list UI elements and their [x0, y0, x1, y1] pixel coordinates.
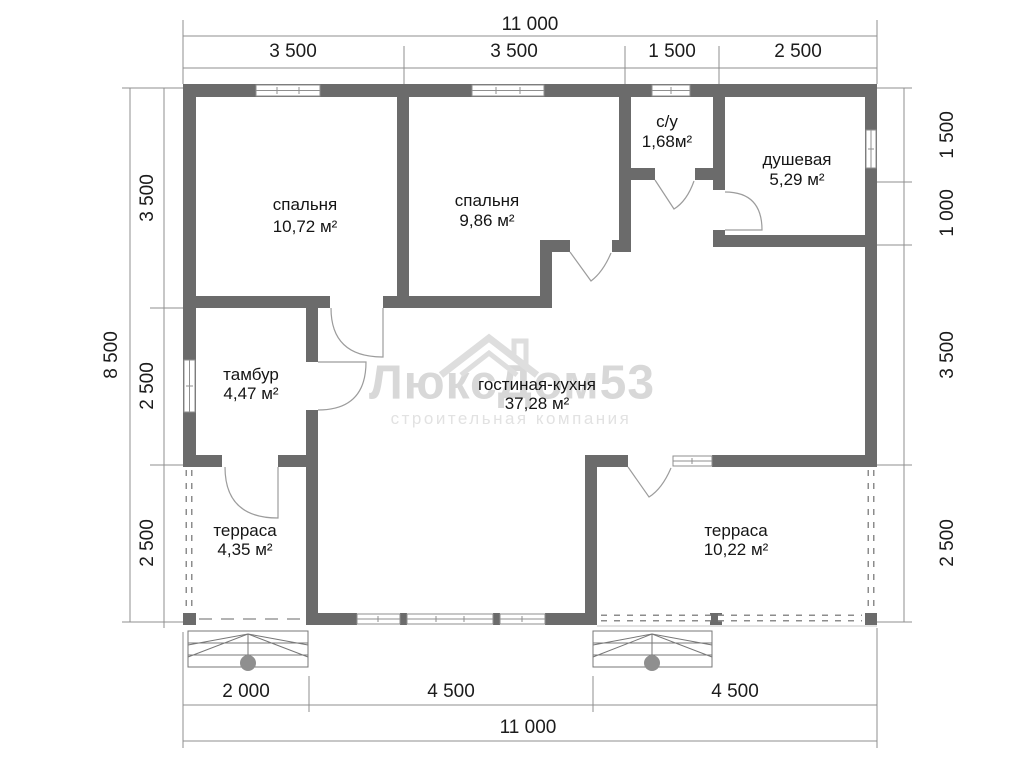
dim-left-overall: 8 500 [101, 331, 123, 379]
window-terrace-wall [673, 456, 712, 466]
dim-left-seg-1: 3 500 [137, 174, 159, 222]
dim-bottom-seg-1: 2 000 [222, 681, 270, 703]
door-tambour-living [318, 362, 366, 410]
floor-plan: ЛюксДом53 строительная компания [0, 0, 1024, 768]
door-bedroom2 [570, 252, 611, 281]
dim-right-seg-2: 1 000 [937, 189, 959, 237]
dim-bottom-overall: 11 000 [500, 717, 557, 739]
window-bedroom1 [256, 85, 320, 96]
room-terrace-left-name: терраса [213, 521, 276, 541]
terrace-edges [189, 470, 877, 626]
dim-left-seg-3: 2 500 [137, 519, 159, 567]
window-living-south-1 [357, 614, 400, 624]
room-bedroom1-area: 10,72 м² [273, 217, 338, 237]
window-living-south-3 [500, 614, 545, 624]
door-bedroom1 [331, 308, 383, 357]
dim-right-seg-1: 1 500 [937, 111, 959, 159]
window-living-south-2 [407, 614, 493, 624]
entry-steps-right [593, 631, 712, 671]
window-shower [866, 130, 876, 168]
dim-top-seg-2: 3 500 [490, 41, 538, 63]
door-tambour-terrace [225, 467, 278, 518]
room-shower-name: душевая [762, 150, 831, 170]
window-bedroom2 [472, 85, 544, 96]
dim-bottom-seg-3: 4 500 [711, 681, 759, 703]
room-tambour-name: тамбур [223, 365, 279, 385]
room-wc-name: с/у [656, 112, 678, 132]
dim-top-seg-1: 3 500 [269, 41, 317, 63]
dim-top-seg-3: 1 500 [648, 41, 696, 63]
room-bedroom1-name: спальня [273, 195, 338, 215]
room-terrace-right-name: терраса [704, 521, 767, 541]
door-shower [725, 192, 762, 230]
room-terrace-left-area: 4,35 м² [217, 540, 272, 560]
window-wc [652, 85, 690, 96]
window-tambour [184, 360, 195, 412]
dim-bottom-seg-2: 4 500 [427, 681, 475, 703]
room-living-area: 37,28 м² [505, 394, 570, 414]
dim-right-seg-3: 3 500 [937, 331, 959, 379]
door-wc [655, 180, 694, 209]
entry-steps-left [188, 631, 308, 671]
dim-top-overall: 11 000 [502, 14, 559, 36]
dim-top-seg-4: 2 500 [774, 41, 822, 63]
watermark-roof-icon [441, 338, 537, 375]
dim-right-seg-4: 2 500 [937, 519, 959, 567]
room-tambour-area: 4,47 м² [223, 384, 278, 404]
room-living-name: гостиная-кухня [478, 375, 596, 395]
room-bedroom2-area: 9,86 м² [459, 211, 514, 231]
room-terrace-right-area: 10,22 м² [704, 540, 769, 560]
room-bedroom2-name: спальня [455, 191, 520, 211]
door-living-terrace [628, 467, 671, 497]
dim-left-seg-2: 2 500 [137, 362, 159, 410]
room-wc-area: 1,68м² [642, 132, 692, 152]
room-shower-area: 5,29 м² [769, 170, 824, 190]
